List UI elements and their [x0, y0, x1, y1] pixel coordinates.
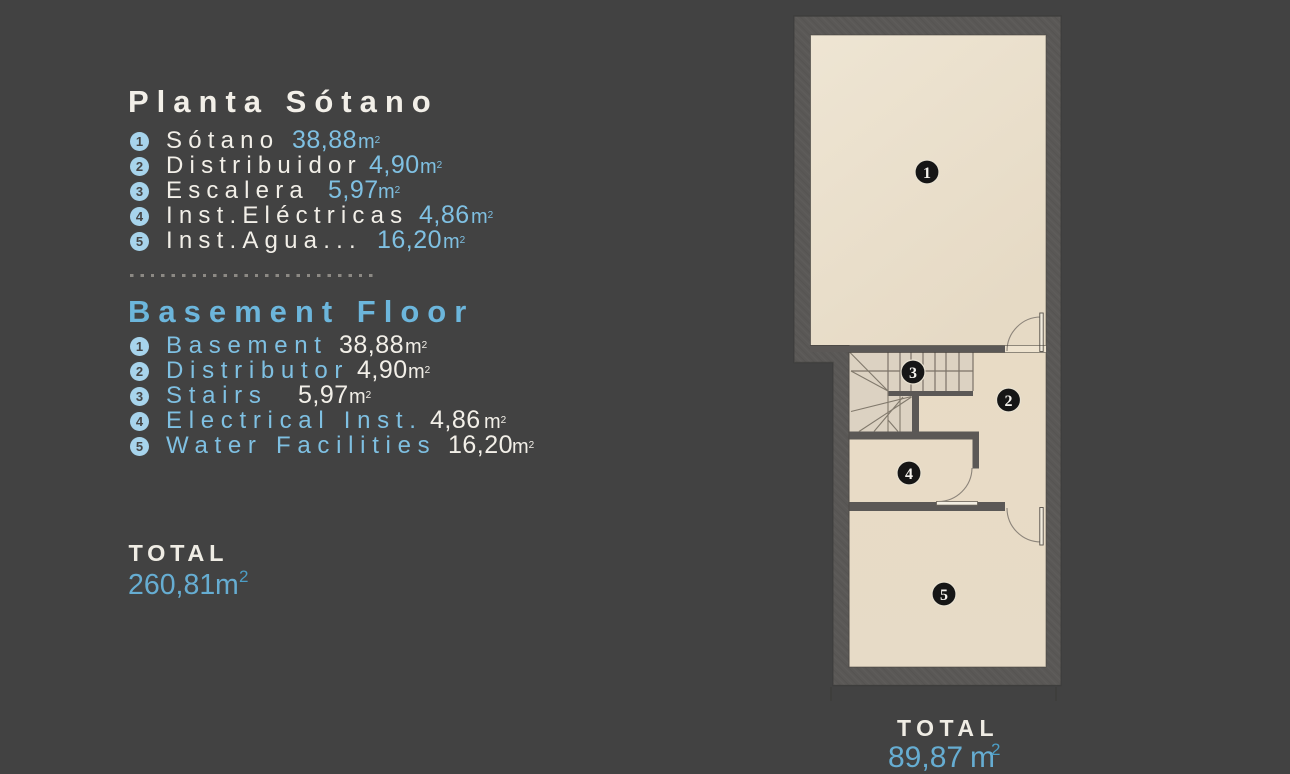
- svg-text:3: 3: [909, 365, 917, 382]
- svg-text:2: 2: [1005, 393, 1013, 410]
- svg-text:4: 4: [905, 466, 913, 483]
- svg-text:5: 5: [940, 587, 948, 604]
- svg-text:1: 1: [923, 165, 931, 182]
